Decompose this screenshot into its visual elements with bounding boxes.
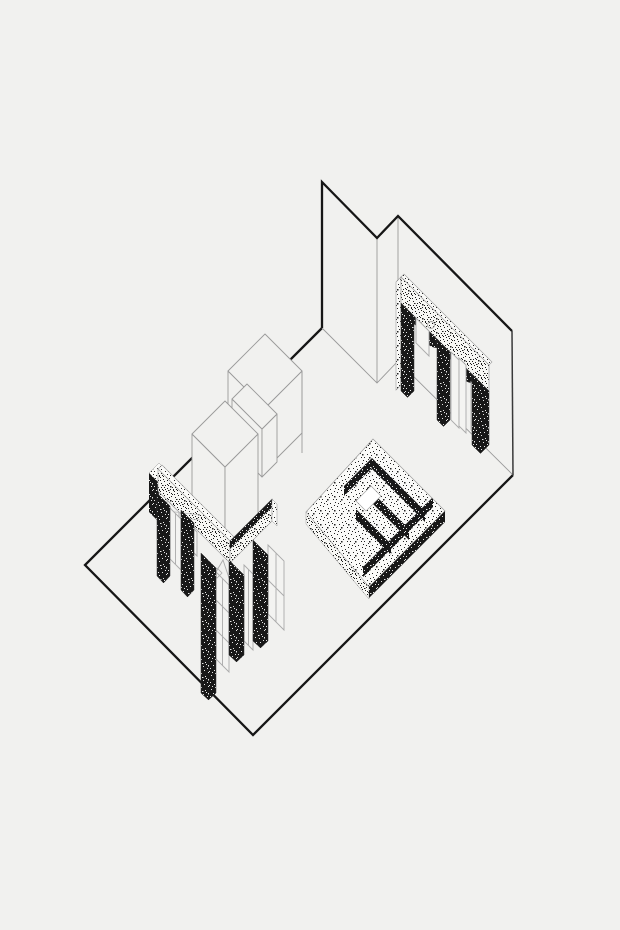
pier	[201, 553, 216, 700]
paper-background	[0, 0, 620, 930]
display-panel	[459, 358, 466, 433]
drawing-stage	[0, 0, 620, 930]
pier	[229, 560, 244, 662]
pier	[181, 510, 194, 597]
back-wall-right-edge	[512, 331, 513, 475]
pier	[253, 540, 268, 648]
pier	[157, 493, 170, 583]
display-panel	[451, 352, 459, 428]
door-panel	[170, 508, 181, 570]
pier	[401, 303, 414, 398]
right-arcade-end-face	[396, 277, 401, 390]
pier	[437, 339, 450, 427]
door-panel	[244, 565, 253, 650]
back-wall-return-face	[377, 216, 398, 383]
axonometric-drawing	[0, 0, 620, 930]
wing-b-end-face	[272, 499, 277, 526]
door-panel	[216, 572, 229, 672]
